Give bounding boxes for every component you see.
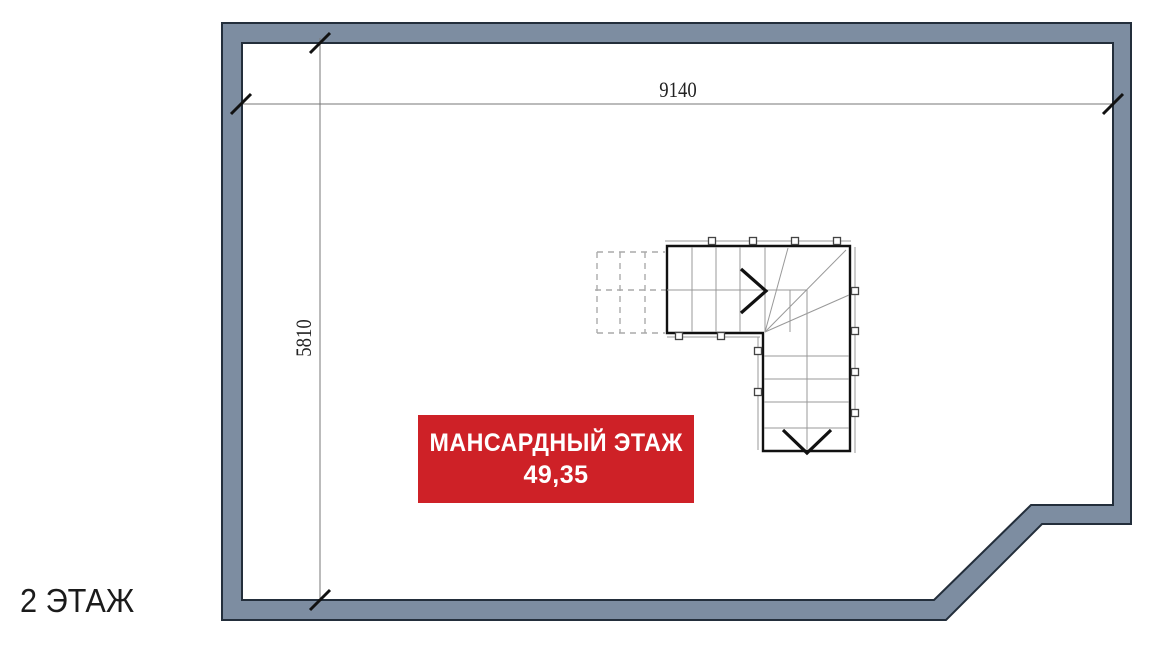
dimension-height-label: 5810 xyxy=(292,296,316,381)
floor-plan-drawing xyxy=(0,0,1163,650)
floor-plan-canvas: 9140 5810 МАНСАРДНЫЙ ЭТАЖ 49,35 2 ЭТАЖ xyxy=(0,0,1163,650)
floor-label: 2 ЭТАЖ xyxy=(20,582,134,620)
area-badge-title: МАНСАРДНЫЙ ЭТАЖ xyxy=(429,429,682,458)
staircase xyxy=(665,238,859,454)
stair-dashed-flight xyxy=(595,252,667,333)
area-badge: МАНСАРДНЫЙ ЭТАЖ 49,35 xyxy=(418,415,694,503)
area-badge-value: 49,35 xyxy=(523,461,588,490)
dimension-width-label: 9140 xyxy=(636,78,721,102)
